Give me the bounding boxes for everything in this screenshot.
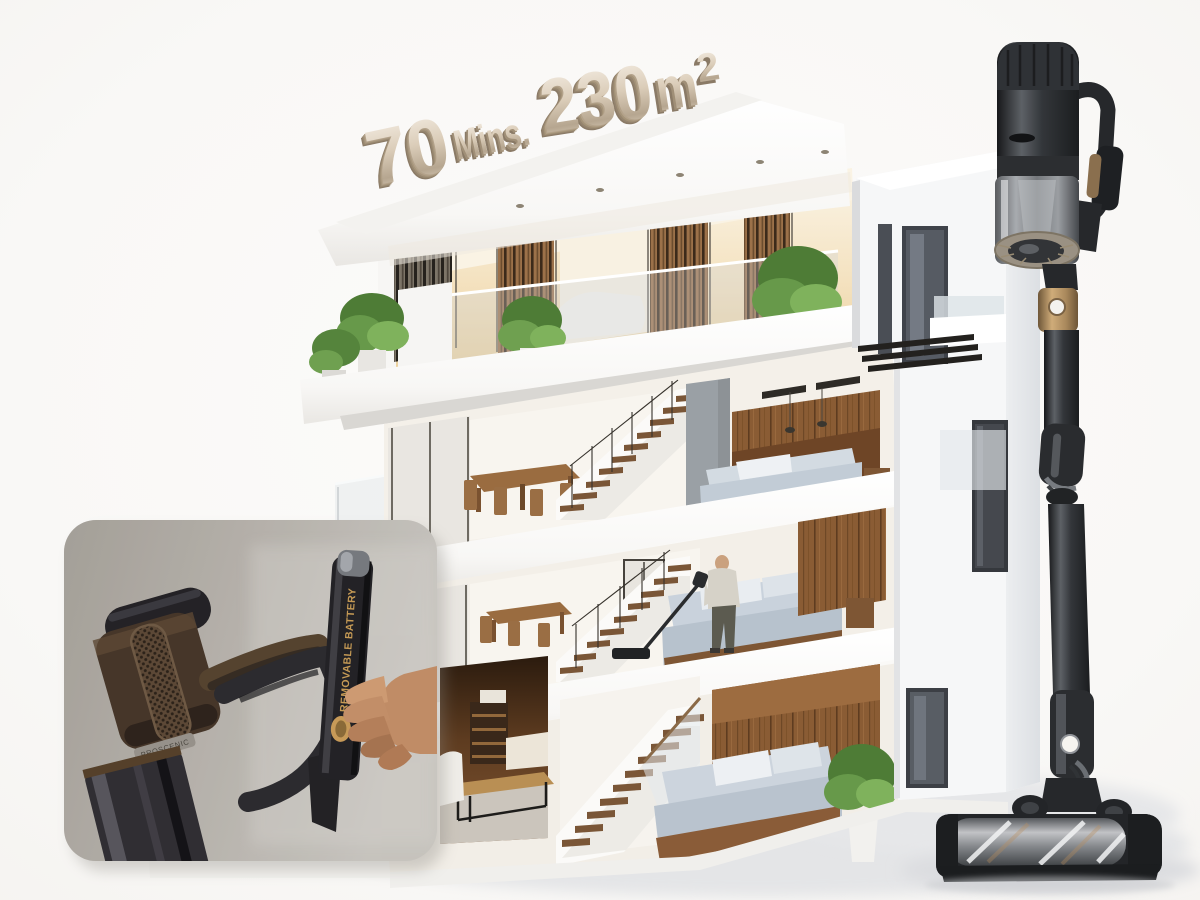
svg-text:230: 230 bbox=[534, 48, 658, 149]
